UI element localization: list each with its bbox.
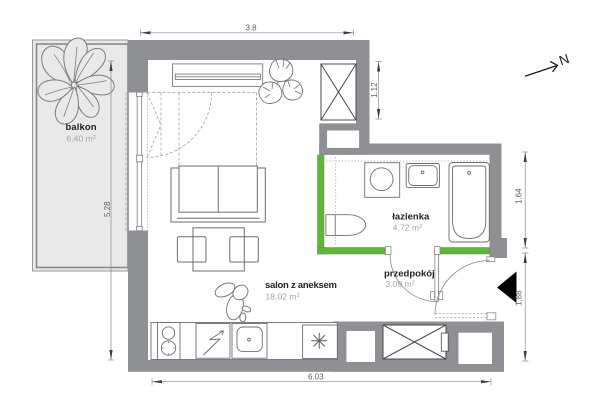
svg-text:1.12: 1.12 xyxy=(370,82,379,98)
svg-text:3.09 m2: 3.09 m2 xyxy=(385,279,415,289)
svg-text:6.03: 6.03 xyxy=(308,372,324,381)
svg-text:3.8: 3.8 xyxy=(246,24,258,33)
svg-text:łazienka: łazienka xyxy=(392,212,430,223)
svg-text:6.40 m2: 6.40 m2 xyxy=(67,134,97,144)
svg-text:1.88: 1.88 xyxy=(515,290,524,306)
svg-text:salon z aneksem: salon z aneksem xyxy=(265,280,337,291)
svg-text:1.64: 1.64 xyxy=(515,188,524,204)
svg-text:balkon: balkon xyxy=(66,122,97,133)
svg-text:18.02 m2: 18.02 m2 xyxy=(266,292,300,302)
svg-text:5.28: 5.28 xyxy=(103,201,112,217)
svg-text:4.72 m2: 4.72 m2 xyxy=(393,223,423,233)
